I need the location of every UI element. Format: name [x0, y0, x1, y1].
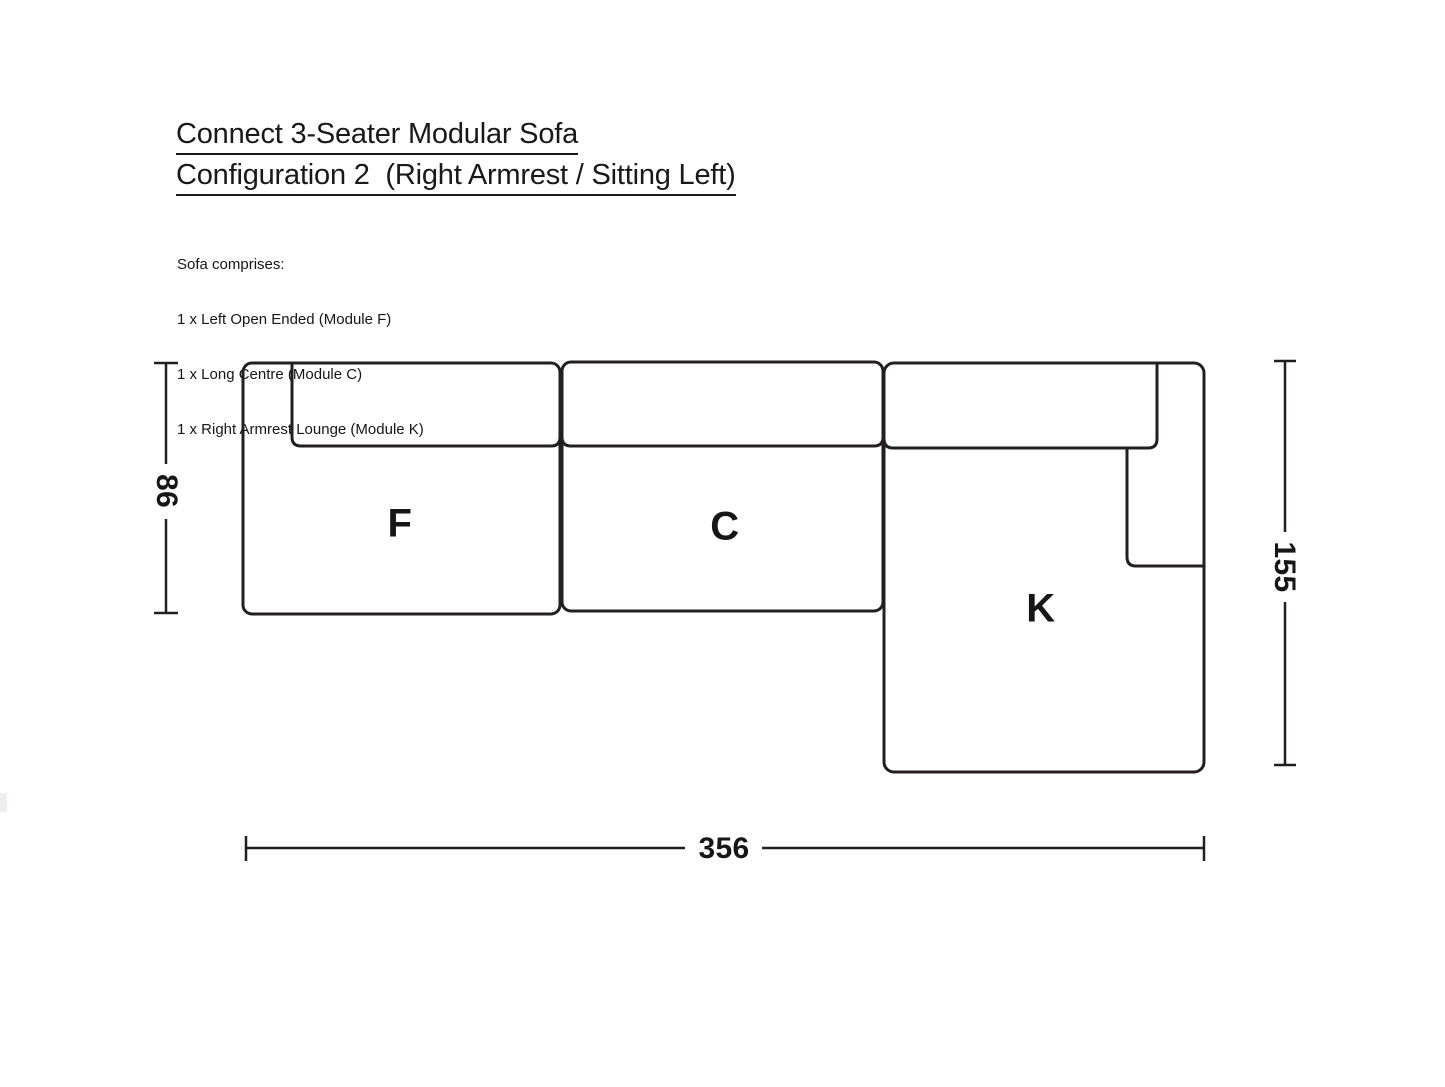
- dimension-left-value: 86: [149, 474, 183, 508]
- page: Connect 3-Seater Modular Sofa Configurat…: [0, 0, 1445, 1087]
- module-k-armrest-outline: [1127, 448, 1204, 566]
- module-c-outline: [562, 362, 883, 611]
- dimension-right-value: 155: [1267, 542, 1301, 593]
- edge-artifact: [0, 793, 7, 812]
- module-c-label: C: [710, 505, 739, 550]
- module-f-backrest-outline: [292, 363, 560, 446]
- module-k-backrest-outline: [884, 363, 1157, 448]
- module-f-outline: [243, 363, 560, 614]
- module-c-seat-outline: [562, 362, 883, 611]
- module-k-label: K: [1026, 587, 1055, 632]
- module-c-backrest-outline: [562, 437, 883, 446]
- dimension-bottom-value: 356: [699, 832, 750, 866]
- module-k-outline: [884, 363, 1204, 772]
- module-f-label: F: [388, 502, 413, 547]
